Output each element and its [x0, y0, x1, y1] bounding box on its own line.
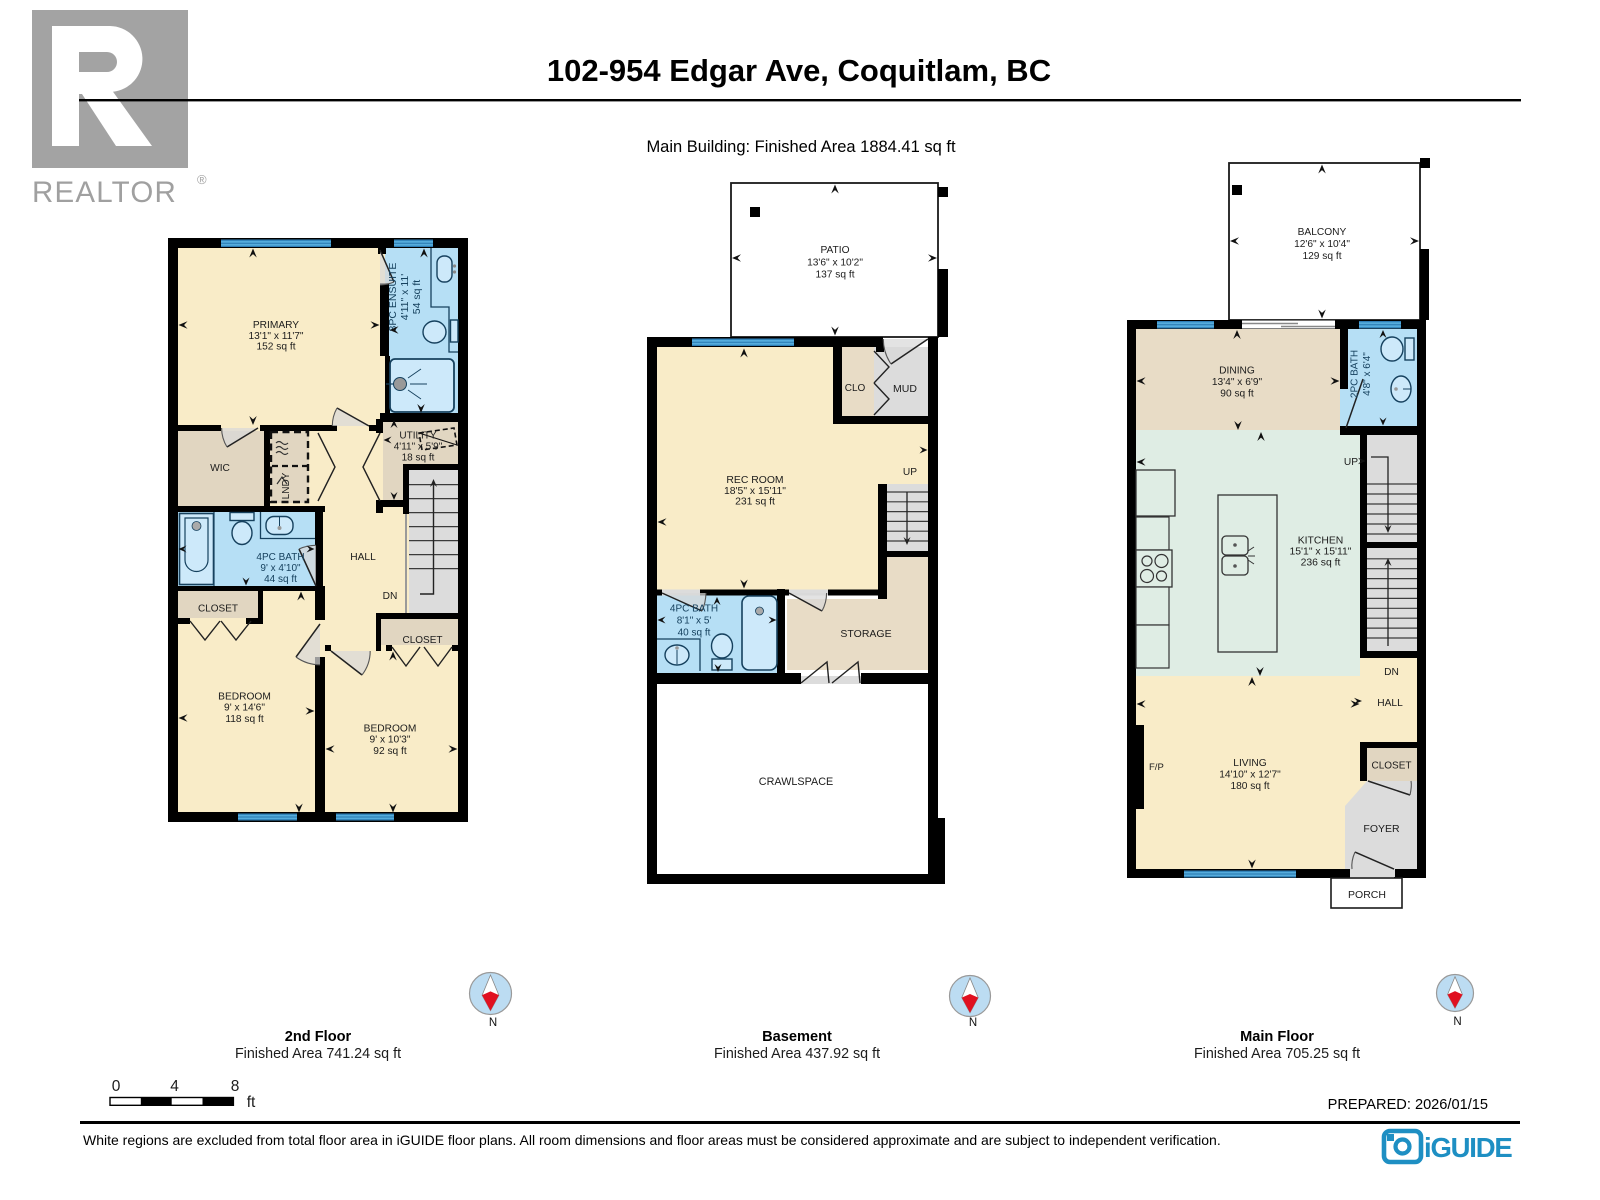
svg-text:12'6" x 10'4": 12'6" x 10'4": [1294, 239, 1350, 250]
svg-text:4'11" x 11': 4'11" x 11': [399, 274, 411, 320]
svg-text:BEDROOM: BEDROOM: [218, 692, 271, 703]
svg-text:2nd Floor: 2nd Floor: [285, 1029, 352, 1045]
svg-text:CLOSET: CLOSET: [402, 635, 442, 646]
svg-text:N: N: [969, 1017, 977, 1029]
svg-text:FOYER: FOYER: [1363, 823, 1400, 835]
svg-text:18'5" x 15'11": 18'5" x 15'11": [724, 486, 786, 497]
svg-text:8: 8: [231, 1078, 240, 1095]
svg-text:CLOSET: CLOSET: [1371, 761, 1411, 772]
svg-text:®: ®: [197, 172, 207, 187]
svg-text:White regions are excluded fro: White regions are excluded from total fl…: [83, 1132, 1221, 1148]
svg-text:137 sq ft: 137 sq ft: [815, 270, 854, 281]
svg-text:9' x 4'10": 9' x 4'10": [260, 563, 301, 574]
svg-text:8'1" x 5': 8'1" x 5': [677, 616, 712, 627]
svg-text:UP: UP: [903, 467, 917, 478]
svg-text:13'4" x 6'9": 13'4" x 6'9": [1212, 377, 1263, 388]
svg-text:9' x 14'6": 9' x 14'6": [224, 703, 265, 714]
svg-text:PREPARED: 2026/01/15: PREPARED: 2026/01/15: [1328, 1097, 1488, 1113]
svg-text:iGUIDE: iGUIDE: [1424, 1132, 1512, 1163]
svg-text:90 sq ft: 90 sq ft: [1220, 389, 1254, 400]
svg-text:231 sq ft: 231 sq ft: [735, 497, 775, 508]
svg-text:N: N: [489, 1017, 497, 1029]
svg-text:Finished Area 705.25 sq ft: Finished Area 705.25 sq ft: [1194, 1046, 1360, 1062]
svg-text:BEDROOM: BEDROOM: [364, 724, 417, 735]
svg-text:44 sq ft: 44 sq ft: [264, 574, 297, 585]
svg-text:F/P: F/P: [1149, 762, 1164, 773]
svg-text:Main Building: Finished Area 1: Main Building: Finished Area 1884.41 sq …: [646, 138, 956, 156]
svg-text:9' x 10'3": 9' x 10'3": [370, 735, 411, 746]
svg-text:STORAGE: STORAGE: [840, 628, 891, 640]
svg-text:Finished Area 741.24 sq ft: Finished Area 741.24 sq ft: [235, 1046, 401, 1062]
svg-text:REC ROOM: REC ROOM: [726, 475, 783, 486]
svg-text:13'1" x 11'7": 13'1" x 11'7": [248, 331, 303, 342]
svg-text:180 sq ft: 180 sq ft: [1230, 781, 1269, 792]
svg-text:CLOSET: CLOSET: [198, 604, 238, 615]
svg-text:Main Floor: Main Floor: [1240, 1029, 1314, 1045]
svg-text:LNDY: LNDY: [281, 472, 292, 499]
svg-text:BALCONY: BALCONY: [1298, 227, 1347, 238]
svg-text:WIC: WIC: [210, 463, 230, 474]
svg-text:4'8" x 6'4": 4'8" x 6'4": [1362, 352, 1373, 396]
svg-text:PRIMARY: PRIMARY: [253, 320, 299, 331]
svg-text:CLO: CLO: [845, 383, 866, 394]
svg-text:REALTOR: REALTOR: [32, 176, 177, 209]
svg-text:UP: UP: [1344, 457, 1358, 468]
svg-text:102-954 Edgar Ave, Coquitlam,: 102-954 Edgar Ave, Coquitlam, BC: [547, 53, 1051, 88]
svg-text:0: 0: [112, 1078, 121, 1095]
svg-text:40 sq ft: 40 sq ft: [678, 628, 711, 639]
svg-text:4'11" x 5'9": 4'11" x 5'9": [394, 442, 443, 453]
svg-text:4PC BATH: 4PC BATH: [256, 552, 304, 563]
svg-text:Basement: Basement: [762, 1029, 832, 1045]
svg-text:MUD: MUD: [893, 383, 917, 395]
svg-text:DN: DN: [383, 591, 398, 602]
svg-text:15'1" x 15'11": 15'1" x 15'11": [1290, 547, 1352, 558]
svg-text:13'6" x 10'2": 13'6" x 10'2": [807, 257, 863, 268]
svg-text:PORCH: PORCH: [1348, 889, 1386, 901]
svg-text:129 sq ft: 129 sq ft: [1302, 251, 1341, 262]
svg-text:CRAWLSPACE: CRAWLSPACE: [759, 776, 833, 788]
svg-text:UTILITY: UTILITY: [399, 431, 437, 442]
svg-text:118 sq ft: 118 sq ft: [225, 714, 263, 725]
svg-text:2PC BATH: 2PC BATH: [1350, 350, 1361, 398]
svg-text:HALL: HALL: [350, 552, 376, 563]
svg-text:14'10" x 12'7": 14'10" x 12'7": [1219, 770, 1281, 781]
svg-text:KITCHEN: KITCHEN: [1298, 536, 1344, 547]
svg-text:PATIO: PATIO: [820, 245, 849, 256]
svg-text:Finished Area 437.92 sq ft: Finished Area 437.92 sq ft: [714, 1046, 880, 1062]
svg-text:N: N: [1453, 1016, 1461, 1028]
svg-text:ft: ft: [247, 1094, 256, 1111]
svg-text:DINING: DINING: [1219, 366, 1255, 377]
svg-text:HALL: HALL: [1377, 698, 1403, 709]
svg-text:3PC ENSUITE: 3PC ENSUITE: [387, 263, 399, 332]
svg-text:4PC BATH: 4PC BATH: [670, 604, 718, 615]
svg-text:54 sq ft: 54 sq ft: [411, 280, 423, 315]
svg-text:LIVING: LIVING: [1233, 758, 1266, 769]
svg-text:236 sq ft: 236 sq ft: [1301, 558, 1341, 569]
svg-text:92 sq ft: 92 sq ft: [373, 746, 407, 757]
svg-text:18 sq ft: 18 sq ft: [402, 453, 435, 464]
svg-text:152 sq ft: 152 sq ft: [256, 342, 295, 353]
svg-text:DN: DN: [1384, 667, 1399, 678]
svg-text:4: 4: [170, 1078, 179, 1095]
